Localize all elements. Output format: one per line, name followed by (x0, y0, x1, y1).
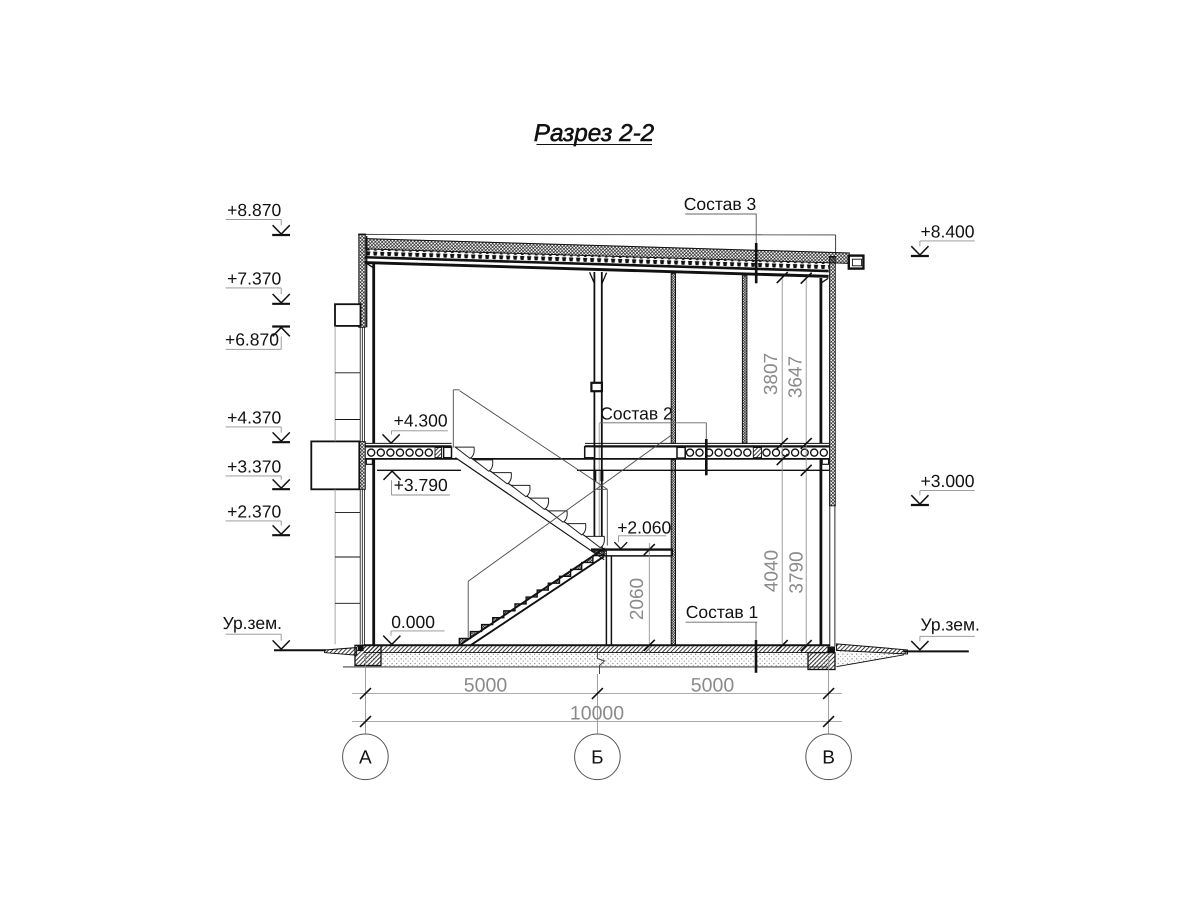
svg-text:А: А (359, 748, 372, 769)
svg-text:+3.790: +3.790 (394, 475, 448, 495)
svg-text:Разрез 2-2: Разрез 2-2 (534, 120, 655, 147)
svg-text:3647: 3647 (786, 356, 807, 398)
svg-text:5000: 5000 (691, 675, 735, 697)
svg-text:+3.000: +3.000 (921, 471, 975, 491)
svg-text:3790: 3790 (787, 551, 808, 593)
svg-text:Б: Б (591, 748, 603, 769)
svg-text:Состав 1: Состав 1 (686, 602, 759, 622)
svg-text:+2.060: +2.060 (617, 518, 671, 538)
svg-text:0.000: 0.000 (391, 612, 435, 632)
svg-text:+8.870: +8.870 (227, 200, 281, 220)
svg-text:+4.370: +4.370 (227, 408, 281, 428)
svg-text:3807: 3807 (761, 353, 782, 395)
svg-text:+6.870: +6.870 (225, 330, 279, 350)
svg-text:Состав 2: Состав 2 (600, 403, 673, 423)
svg-text:4040: 4040 (762, 550, 783, 592)
svg-text:+3.370: +3.370 (227, 457, 281, 477)
svg-text:+7.370: +7.370 (227, 269, 281, 289)
svg-text:+8.400: +8.400 (921, 222, 975, 242)
svg-text:+2.370: +2.370 (227, 502, 281, 522)
svg-text:Состав 3: Состав 3 (684, 194, 757, 214)
svg-text:В: В (822, 748, 835, 769)
svg-text:+4.300: +4.300 (394, 410, 448, 430)
svg-text:2060: 2060 (627, 578, 648, 620)
svg-text:Ур.зем.: Ур.зем. (223, 613, 282, 633)
svg-text:10000: 10000 (570, 703, 624, 725)
svg-text:Ур.зем.: Ур.зем. (921, 615, 980, 635)
svg-text:5000: 5000 (464, 675, 508, 697)
